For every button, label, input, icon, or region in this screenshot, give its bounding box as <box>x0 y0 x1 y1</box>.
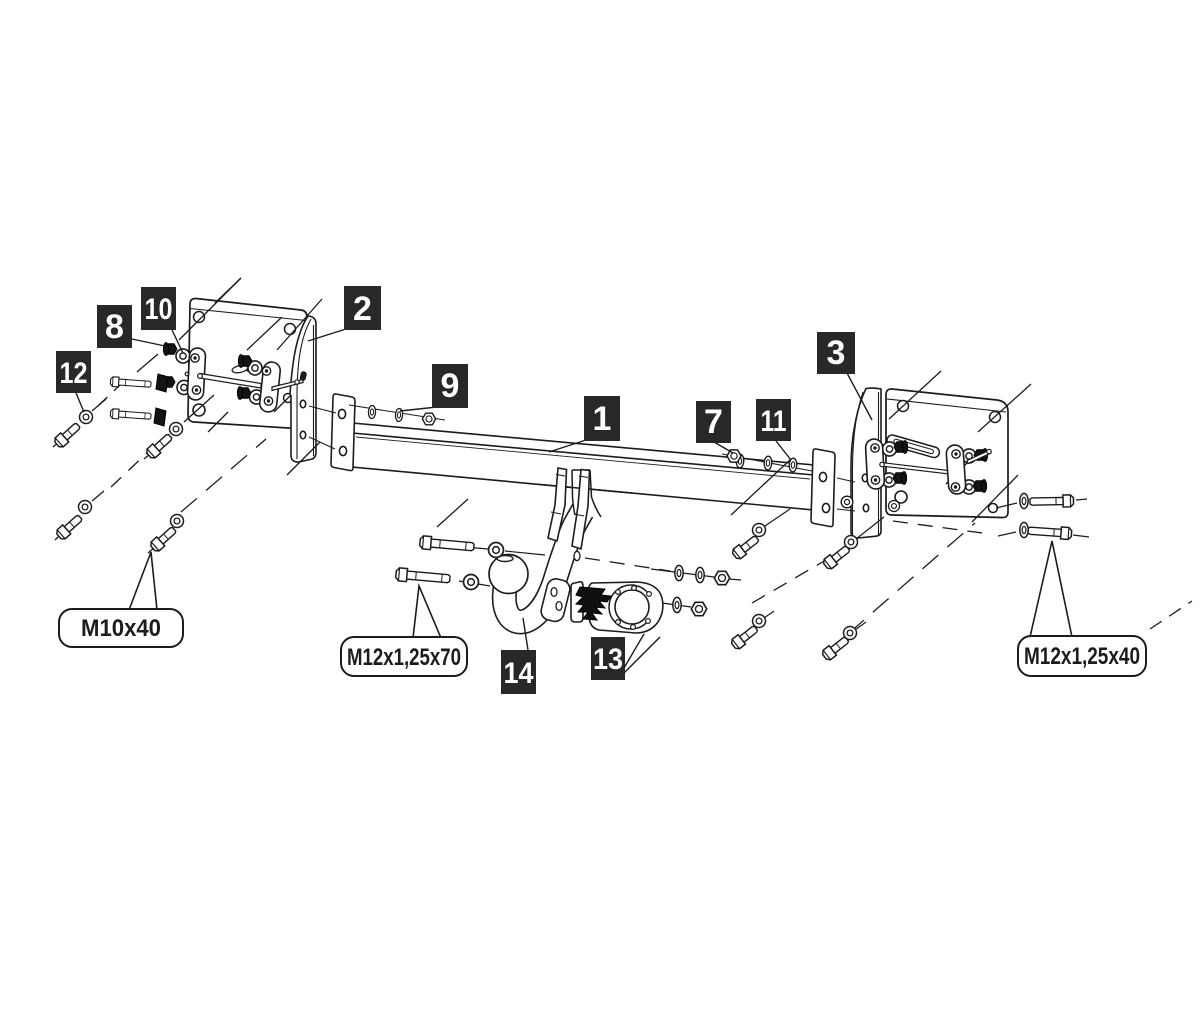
svg-text:13: 13 <box>593 643 623 676</box>
svg-text:M12x1,25x70: M12x1,25x70 <box>347 644 461 671</box>
svg-text:M12x1,25x40: M12x1,25x40 <box>1024 643 1140 670</box>
svg-text:10: 10 <box>145 293 173 326</box>
svg-text:14: 14 <box>504 657 534 690</box>
svg-text:7: 7 <box>704 403 723 441</box>
svg-text:8: 8 <box>105 308 124 346</box>
svg-text:9: 9 <box>441 367 460 405</box>
svg-text:12: 12 <box>60 357 88 390</box>
svg-text:3: 3 <box>827 334 846 372</box>
svg-text:1: 1 <box>593 400 612 438</box>
svg-text:M10x40: M10x40 <box>81 615 161 642</box>
svg-text:11: 11 <box>761 405 787 438</box>
svg-text:2: 2 <box>353 290 372 328</box>
